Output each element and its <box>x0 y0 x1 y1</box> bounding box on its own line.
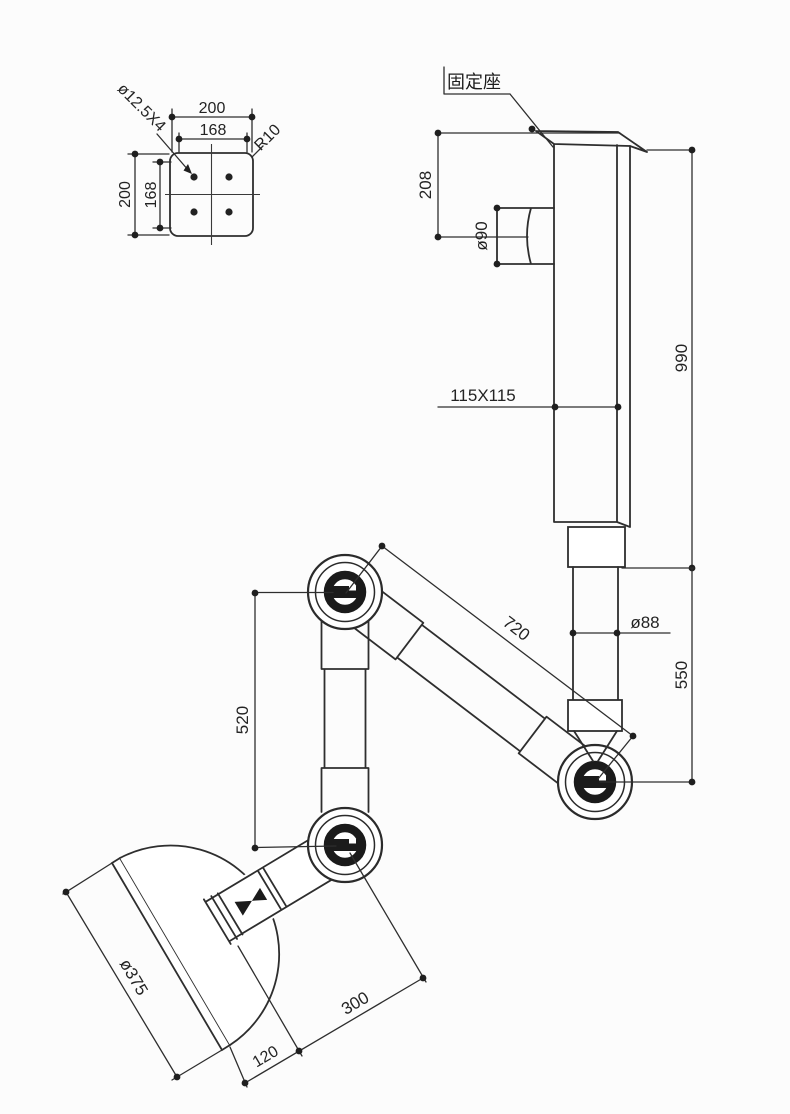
dim-dot <box>252 590 259 597</box>
column-body <box>554 144 630 527</box>
dim-dome-diameter: ø375 <box>116 956 152 999</box>
dim-dot <box>132 232 139 239</box>
dim-upper-arm: 720 <box>499 612 533 644</box>
dim-tube-diameter: ø88 <box>630 613 659 632</box>
dim-plate-height-inner: 168 <box>143 182 160 209</box>
dim-dot <box>157 159 164 166</box>
dim-column-height: 990 <box>672 344 691 372</box>
dim-dot <box>176 136 183 143</box>
dim-plate-width-inner: 168 <box>200 122 227 139</box>
dim-flange-depth: 120 <box>250 1043 282 1071</box>
dim-dot <box>169 114 176 121</box>
dim-plate-width-outer: 200 <box>199 100 226 117</box>
diagonal-arm <box>351 589 588 785</box>
dim-dot <box>529 126 536 133</box>
dim-port-diameter: ø90 <box>472 221 491 250</box>
column-collar <box>568 527 625 567</box>
dim-dot <box>494 261 501 268</box>
extraction-hood <box>112 837 334 1050</box>
drawing-page: 200 168 200 168 ø12.5X4 R10 <box>0 0 790 1114</box>
dim-cross-section: 115X115 <box>450 386 516 405</box>
dim-plate-height-outer: 200 <box>117 181 134 208</box>
plate-hole <box>190 208 197 215</box>
dim-dot <box>420 975 427 982</box>
hood-joint <box>308 808 382 882</box>
plate-hole <box>190 173 197 180</box>
side-port <box>497 208 554 264</box>
dim-neck-length: 300 <box>338 988 372 1019</box>
dim-dot <box>689 779 696 786</box>
dim-dot <box>570 630 577 637</box>
dim-dot <box>615 404 622 411</box>
dim-dot <box>249 114 256 121</box>
mount-plate-detail: 200 168 200 168 ø12.5X4 R10 <box>114 80 284 245</box>
dim-plate-holes: ø12.5X4 <box>114 80 169 135</box>
dim-dot <box>689 147 696 154</box>
dim-dot <box>379 543 386 550</box>
dim-dot <box>435 234 442 241</box>
dim-plate-corner-radius: R10 <box>251 121 284 154</box>
dim-dot <box>157 225 164 232</box>
plate-hole <box>225 208 232 215</box>
dim-dot <box>614 630 621 637</box>
dim-208-lines <box>438 133 620 237</box>
dim-dot <box>630 733 637 740</box>
dim-lower-height: 550 <box>672 661 691 689</box>
dim-dot <box>435 130 442 137</box>
technical-drawing: 200 168 200 168 ø12.5X4 R10 <box>0 0 790 1114</box>
dim-dot <box>494 205 501 212</box>
dim-dot <box>132 151 139 158</box>
knob-notch <box>349 839 356 844</box>
vertical-arm <box>322 612 369 812</box>
dim-dot <box>63 889 70 896</box>
dim-top-offset: 208 <box>416 171 435 199</box>
dim-dot <box>296 1048 303 1055</box>
dim-dot <box>552 404 559 411</box>
tube-collar <box>568 700 622 731</box>
dim-dot <box>252 845 259 852</box>
dim-dot <box>174 1074 181 1081</box>
dim-dot <box>242 1080 249 1087</box>
mount-label: 固定座 <box>447 72 501 92</box>
dim-720-lines <box>346 546 633 779</box>
dim-forearm: 520 <box>233 706 252 734</box>
plate-hole <box>225 173 232 180</box>
dim-dot <box>244 136 251 143</box>
